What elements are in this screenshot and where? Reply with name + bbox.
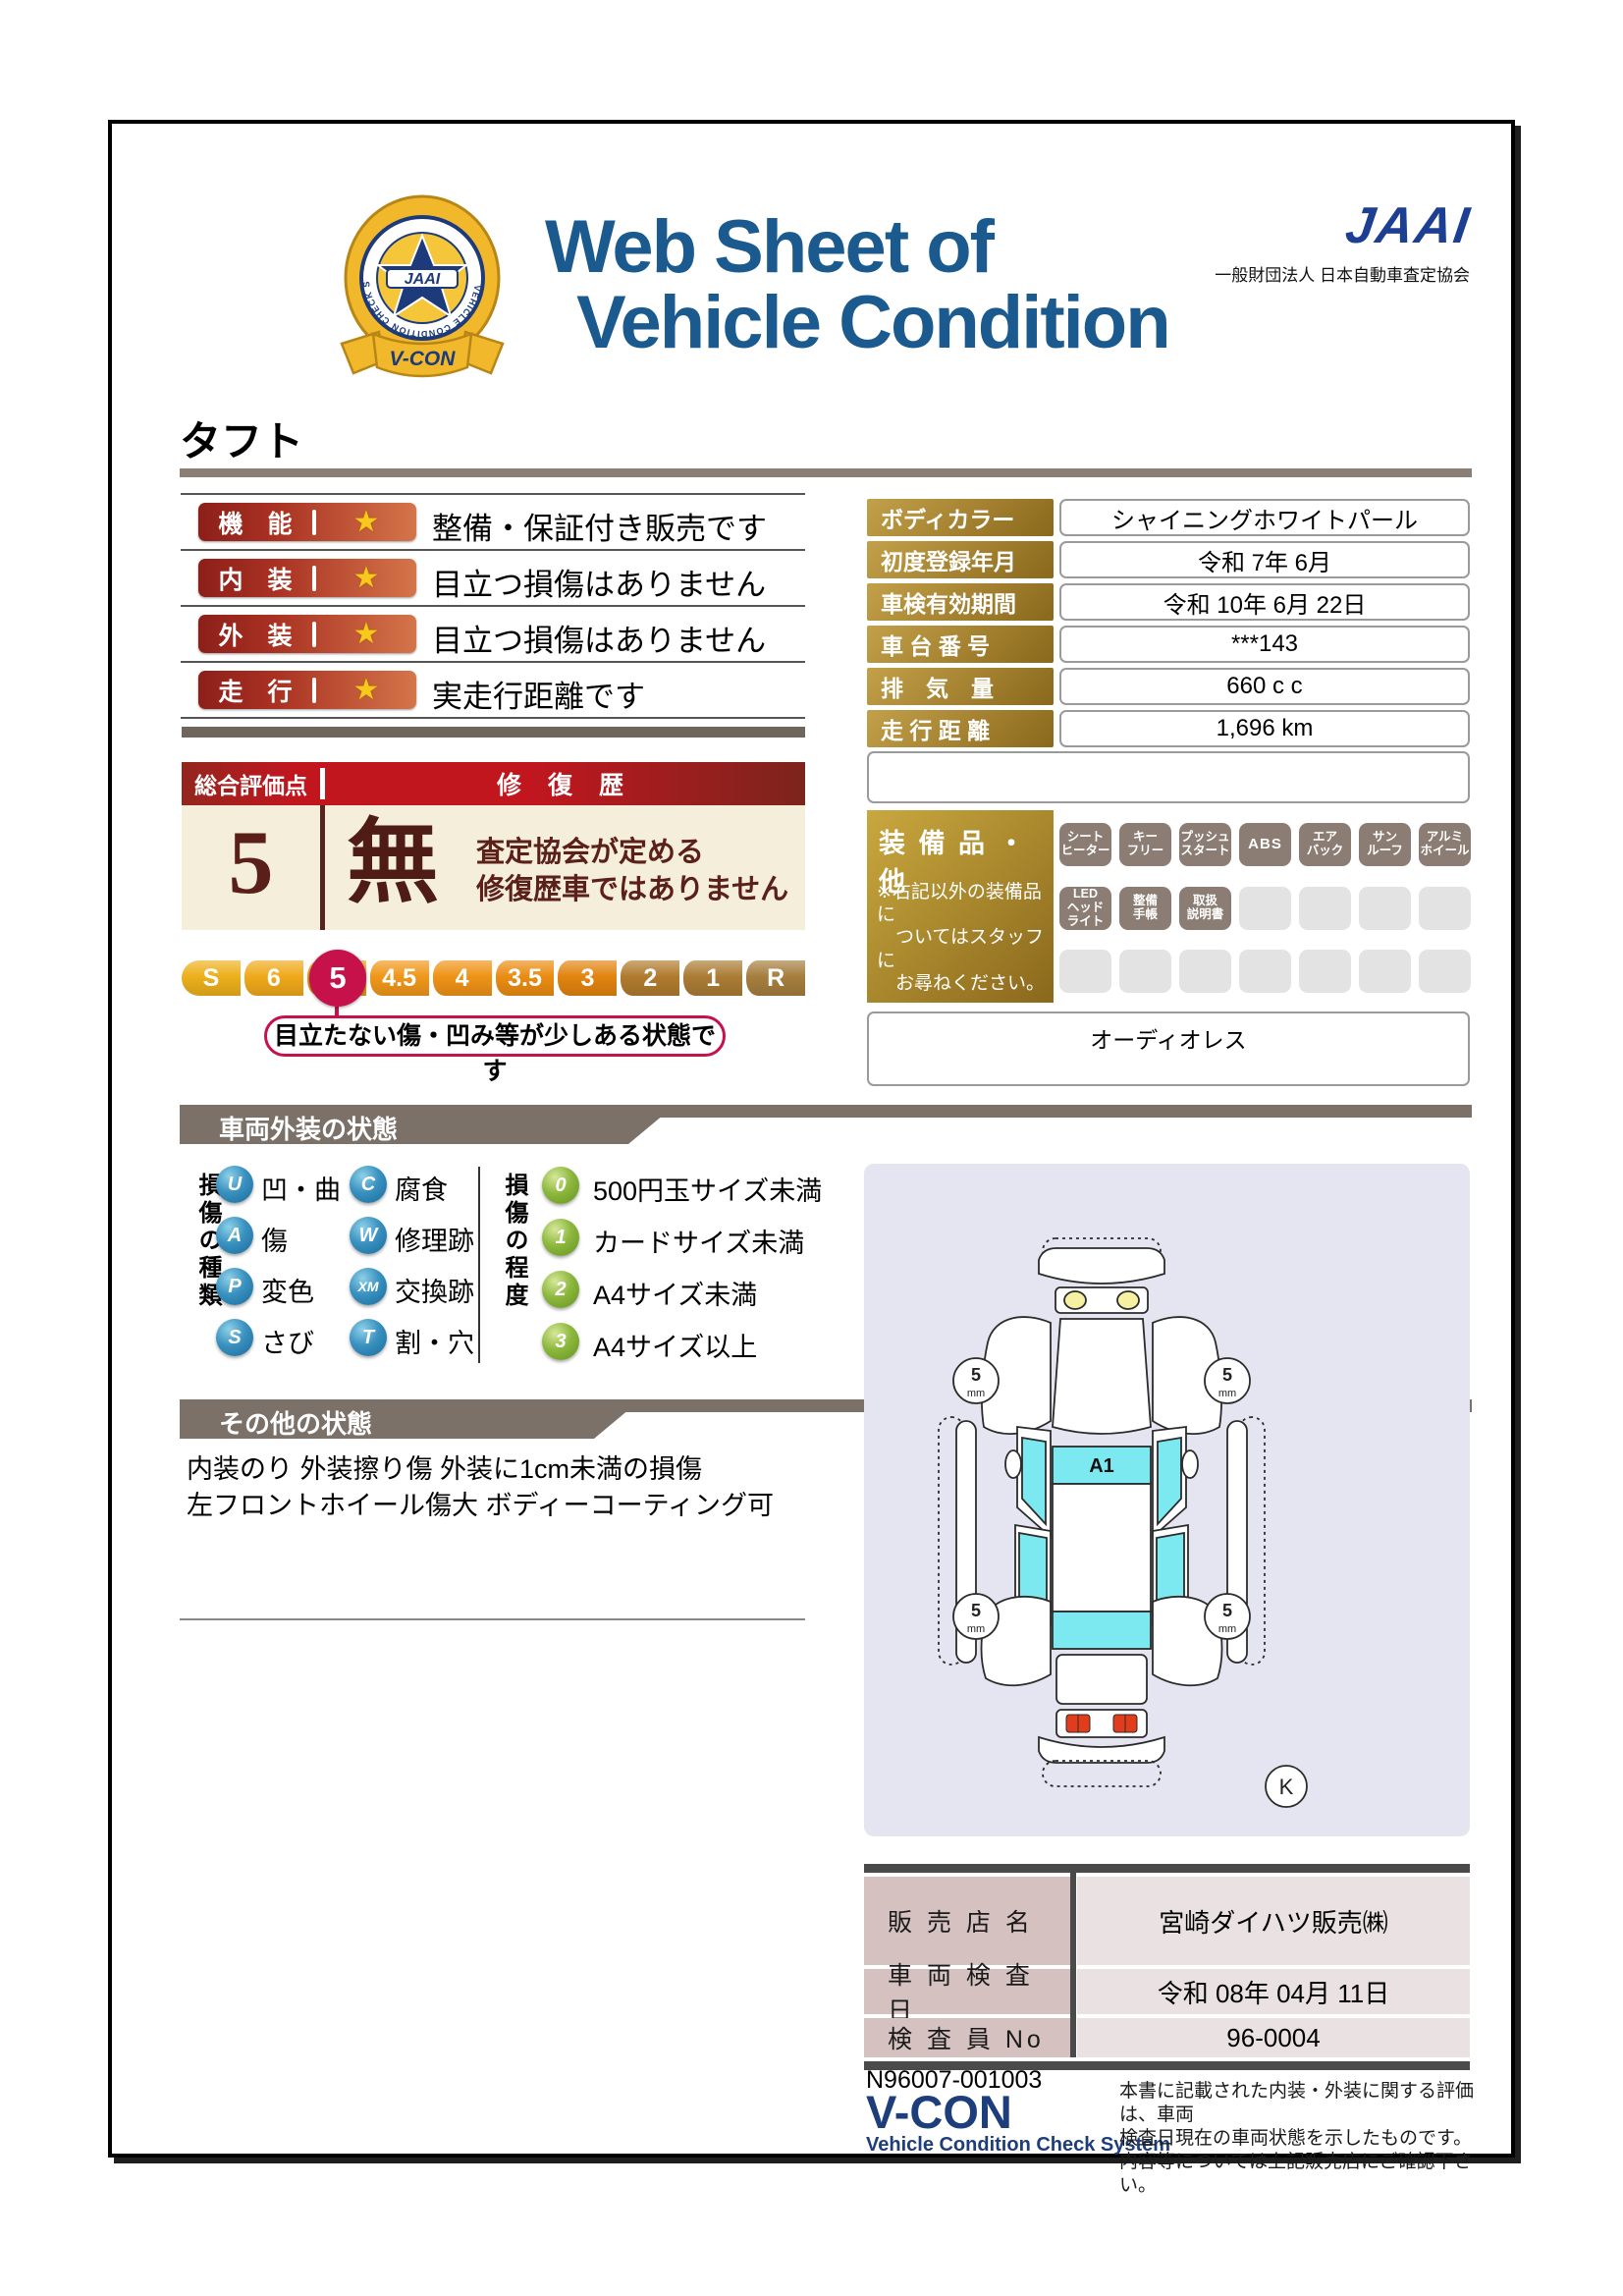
tread-depth-rear-left: 5 mm — [953, 1594, 999, 1639]
roof-damage-code: A1 — [1089, 1455, 1114, 1477]
body-divider — [320, 805, 325, 930]
info-row-body-color: ボディカラー シャイニングホワイトパール — [867, 499, 1470, 536]
dealer-row-inspector-no: 検 査 員 No 96-0004 — [864, 2018, 1470, 2057]
scale-segment: 6 — [241, 960, 303, 996]
info-value: 令和 10年 6月 22日 — [1059, 583, 1470, 621]
info-value: 令和 7年 6月 — [1059, 541, 1470, 578]
damage-type-label: 変色 — [261, 1271, 314, 1309]
equipment-slot-empty — [1419, 950, 1471, 993]
equipment-badge: アルミ ホイール — [1419, 823, 1471, 866]
headlight-left — [1064, 1291, 1086, 1309]
info-empty-box — [867, 751, 1470, 803]
rating-label: 内 装 — [198, 561, 312, 596]
audio-note-box: オーディオレス — [867, 1011, 1470, 1086]
table-top-bar — [864, 1864, 1470, 1873]
emblem-vcon-text: V-CON — [390, 348, 457, 370]
damage-type-label: 割・穴 — [395, 1322, 474, 1360]
svg-text:mm: mm — [1218, 1388, 1236, 1399]
damage-type-icon: C — [350, 1166, 387, 1203]
damage-type-label: 凹・曲 — [261, 1169, 341, 1207]
damage-degree-icon: 2 — [542, 1271, 579, 1308]
roof — [1053, 1484, 1151, 1612]
equipment-slot-empty — [1059, 950, 1111, 993]
dealer-label: 販 売 店 名 — [864, 1877, 1072, 1965]
svg-text:mm: mm — [1218, 1623, 1236, 1635]
rating-description: 目立つ損傷はありません — [432, 616, 766, 660]
equipment-slot-empty — [1239, 887, 1291, 930]
equipment-slot-empty — [1359, 950, 1411, 993]
overall-score-value: 5 — [182, 813, 320, 912]
front-bumper — [1039, 1248, 1164, 1284]
info-label: 走 行 距 離 — [867, 710, 1054, 747]
info-value: 660 c c — [1059, 668, 1470, 705]
rating-description: 目立つ損傷はありません — [432, 560, 766, 604]
tread-depth-front-right: 5 mm — [1205, 1358, 1250, 1403]
info-row-displacement: 排 気 量 660 c c — [867, 668, 1470, 705]
rating-label: 走 行 — [198, 673, 312, 708]
rating-row-interior: 内 装 ★ 目立つ損傷はありません — [181, 549, 805, 605]
info-value: ***143 — [1059, 626, 1470, 663]
score-scale: S 6 4.5 4 3.5 3 2 1 R 5 — [182, 960, 805, 996]
svg-text:5: 5 — [1222, 1601, 1232, 1620]
overall-header: 総合評価点 修 復 歴 — [182, 762, 805, 805]
equipment-badge: ABS — [1239, 823, 1291, 866]
exterior-banner: 車両外装の状態 — [180, 1105, 1472, 1144]
equipment-panel: 装 備 品 ・ 他 ※右記以外の装備品に ついてはスタッフに お尋ねください。 — [867, 810, 1054, 1003]
equipment-note: ※右記以外の装備品に ついてはスタッフに お尋ねください。 — [877, 881, 1054, 995]
damage-degree-icon: 0 — [542, 1167, 579, 1204]
svg-text:5: 5 — [1222, 1365, 1232, 1385]
exterior-banner-title: 車両外装の状態 — [180, 1105, 676, 1144]
equipment-badge: 取扱 説明書 — [1179, 887, 1231, 930]
overall-score-box: 総合評価点 修 復 歴 5 無 査定協会が定める 修復歴車ではありません — [182, 762, 805, 930]
scale-segment: 4.5 — [366, 960, 429, 996]
jaai-logo: JAAI — [1342, 200, 1474, 251]
scale-segment: 2 — [617, 960, 679, 996]
info-row-inspection-valid: 車検有効期間 令和 10年 6月 22日 — [867, 583, 1470, 621]
emblem-jaai-text: JAAI — [405, 271, 441, 288]
info-row-first-registration: 初度登録年月 令和 7年 6月 — [867, 541, 1470, 578]
scale-segment: R — [742, 960, 805, 996]
overall-score-label: 総合評価点 — [182, 762, 320, 805]
rating-pill: 外 装 ★ — [198, 615, 416, 653]
dealer-value: 令和 08年 04月 11日 — [1077, 1969, 1470, 2014]
repair-history-label: 修 復 歴 — [325, 762, 805, 805]
rear-bumper — [1039, 1737, 1164, 1763]
damage-type-label: さび — [261, 1322, 314, 1360]
scale-segment: 3 — [554, 960, 617, 996]
damage-degree-icon: 1 — [542, 1219, 579, 1256]
footer-disclaimer: 本書に記載された内装・外装に関する評価は、車両 検査日現在の車両状態を示したもの… — [1119, 2080, 1475, 2198]
score-callout: 目立たない傷・凹み等が少しある状態です — [264, 1015, 726, 1057]
equipment-slot-empty — [1239, 950, 1291, 993]
info-row-chassis-number: 車 台 番 号 ***143 — [867, 626, 1470, 663]
damage-type-icon: XM — [350, 1268, 387, 1305]
svg-text:mm: mm — [967, 1623, 985, 1635]
equipment-slot-empty — [1359, 887, 1411, 930]
damage-type-icon: P — [216, 1268, 253, 1305]
scale-segment: 1 — [679, 960, 742, 996]
scale-segment: S — [182, 960, 241, 996]
jaai-subtitle: 一般財団法人 日本自動車査定協会 — [1215, 261, 1470, 286]
star-icon: ★ — [316, 559, 416, 597]
equipment-badge: LED ヘッド ライト — [1059, 887, 1111, 930]
divider-line — [180, 1618, 805, 1620]
corner-mark: K — [1266, 1766, 1307, 1807]
tailgate — [1056, 1655, 1147, 1704]
star-icon: ★ — [316, 671, 416, 709]
dealer-value: 宮崎ダイハツ販売㈱ — [1077, 1877, 1470, 1965]
other-condition-title: その他の状態 — [180, 1399, 641, 1439]
rating-row-mileage: 走 行 ★ 実走行距離です — [181, 661, 805, 717]
tread-depth-rear-right: 5 mm — [1205, 1594, 1250, 1639]
scale-segment: 3.5 — [492, 960, 555, 996]
car-damage-diagram: .ln{fill:#fff;stroke:#2b2b2b;stroke-widt… — [864, 1164, 1470, 1836]
rating-row-exterior: 外 装 ★ 目立つ損傷はありません — [181, 605, 805, 661]
page-title-line2: Vehicle Condition — [576, 286, 1169, 360]
selected-score-marker: 5 — [309, 950, 366, 1007]
ratings-list: 機 能 ★ 整備・保証付き販売です 内 装 ★ 目立つ損傷はありません 外 装 … — [181, 493, 805, 719]
damage-type-label: 傷 — [261, 1220, 288, 1258]
damage-type-label: 腐食 — [395, 1169, 448, 1207]
equipment-badge: エア バック — [1299, 823, 1351, 866]
damage-type-title: 損傷の種類 — [190, 1173, 225, 1349]
equipment-badge: プッシュ スタート — [1179, 823, 1231, 866]
table-column-divider — [1070, 1873, 1076, 2057]
rating-row-function: 機 能 ★ 整備・保証付き販売です — [181, 493, 805, 549]
damage-degree-label: カードサイズ未満 — [593, 1222, 804, 1260]
rating-description: 整備・保証付き販売です — [432, 504, 767, 548]
info-row-mileage: 走 行 距 離 1,696 km — [867, 710, 1470, 747]
equipment-slot-empty — [1419, 887, 1471, 930]
rear-bumper-outline — [1043, 1761, 1161, 1786]
tread-depth-front-left: 5 mm — [953, 1358, 999, 1403]
svg-text:K: K — [1279, 1775, 1294, 1799]
damage-type-icon: W — [350, 1217, 387, 1254]
info-value: 1,696 km — [1059, 710, 1470, 747]
repair-history-value: 無 — [347, 811, 439, 912]
rating-pill: 走 行 ★ — [198, 671, 416, 709]
rating-pill: 機 能 ★ — [198, 503, 416, 541]
damage-degree-title: 損傷の程度 — [497, 1173, 531, 1349]
equipment-slot-empty — [1179, 950, 1231, 993]
equipment-badge: サン ルーフ — [1359, 823, 1411, 866]
vehicle-name: タフト — [180, 409, 303, 468]
windshield — [1053, 1319, 1151, 1434]
damage-type-icon: T — [350, 1319, 387, 1356]
scale-segment: 4 — [429, 960, 492, 996]
divider-rule — [180, 468, 1472, 477]
dealer-label: 車 両 検 査 日 — [864, 1969, 1072, 2014]
damage-type-label: 修理跡 — [395, 1220, 474, 1258]
overall-body: 5 無 査定協会が定める 修復歴車ではありません — [182, 805, 805, 930]
vehicle-condition-sheet: JAAI VEHICLE CONDITION CHECK SYSTEM V-CO… — [108, 120, 1515, 2158]
rating-label: 外 装 — [198, 617, 312, 652]
dealer-row-shop: 販 売 店 名 宮崎ダイハツ販売㈱ — [864, 1877, 1470, 1965]
svg-text:5: 5 — [971, 1601, 981, 1620]
dealer-label: 検 査 員 No — [864, 2018, 1072, 2057]
section-bar — [182, 727, 805, 738]
rating-description: 実走行距離です — [432, 672, 645, 716]
rating-pill: 内 装 ★ — [198, 559, 416, 597]
damage-type-icon: S — [216, 1319, 253, 1356]
info-label: ボディカラー — [867, 499, 1054, 536]
equipment-slot-empty — [1299, 950, 1351, 993]
equipment-grid: シート ヒーター キー フリー プッシュ スタート ABS エア バック サン … — [1059, 810, 1470, 1003]
rating-label: 機 能 — [198, 505, 312, 540]
damage-type-label: 交換跡 — [395, 1271, 474, 1309]
equipment-slot-empty — [1299, 887, 1351, 930]
equipment-badge: キー フリー — [1119, 823, 1171, 866]
equipment-badge: シート ヒーター — [1059, 823, 1111, 866]
info-value: シャイニングホワイトパール — [1059, 499, 1470, 536]
star-icon: ★ — [316, 503, 416, 541]
svg-text:mm: mm — [967, 1388, 985, 1399]
damage-degree-label: A4サイズ未満 — [593, 1274, 757, 1312]
equipment-badge: 整備 手帳 — [1119, 887, 1171, 930]
star-icon: ★ — [316, 615, 416, 653]
equipment-section: 装 備 品 ・ 他 ※右記以外の装備品に ついてはスタッフに お尋ねください。 … — [867, 810, 1470, 1003]
other-condition-text: 内装のり 外装擦り傷 外装に1cm未満の損傷 左フロントホイール傷大 ボディーコ… — [187, 1451, 774, 1524]
page-title-line1: Web Sheet of — [545, 210, 993, 285]
equipment-slot-empty — [1119, 950, 1171, 993]
info-label: 初度登録年月 — [867, 541, 1054, 578]
legend-divider — [478, 1167, 480, 1363]
info-label: 車検有効期間 — [867, 583, 1054, 621]
repair-history-description: 査定協会が定める 修復歴車ではありません — [476, 835, 788, 908]
vcon-emblem-icon: JAAI VEHICLE CONDITION CHECK SYSTEM V-CO… — [324, 185, 520, 401]
damage-degree-label: 500円玉サイズ未満 — [593, 1170, 822, 1208]
dealer-table: 販 売 店 名 宮崎ダイハツ販売㈱ 車 両 検 査 日 令和 08年 04月 1… — [864, 1864, 1470, 2070]
dealer-value: 96-0004 — [1077, 2018, 1470, 2057]
damage-type-icon: U — [216, 1166, 253, 1203]
info-label: 車 台 番 号 — [867, 626, 1054, 663]
damage-degree-icon: 3 — [542, 1323, 579, 1360]
damage-degree-label: A4サイズ以上 — [593, 1326, 757, 1364]
rear-window — [1053, 1612, 1151, 1649]
vcon-logo: V-CON — [866, 2089, 1012, 2135]
dealer-row-inspection-date: 車 両 検 査 日 令和 08年 04月 11日 — [864, 1969, 1470, 2014]
svg-text:5: 5 — [971, 1365, 981, 1385]
headlight-right — [1117, 1291, 1139, 1309]
info-label: 排 気 量 — [867, 668, 1054, 705]
damage-type-icon: A — [216, 1217, 253, 1254]
